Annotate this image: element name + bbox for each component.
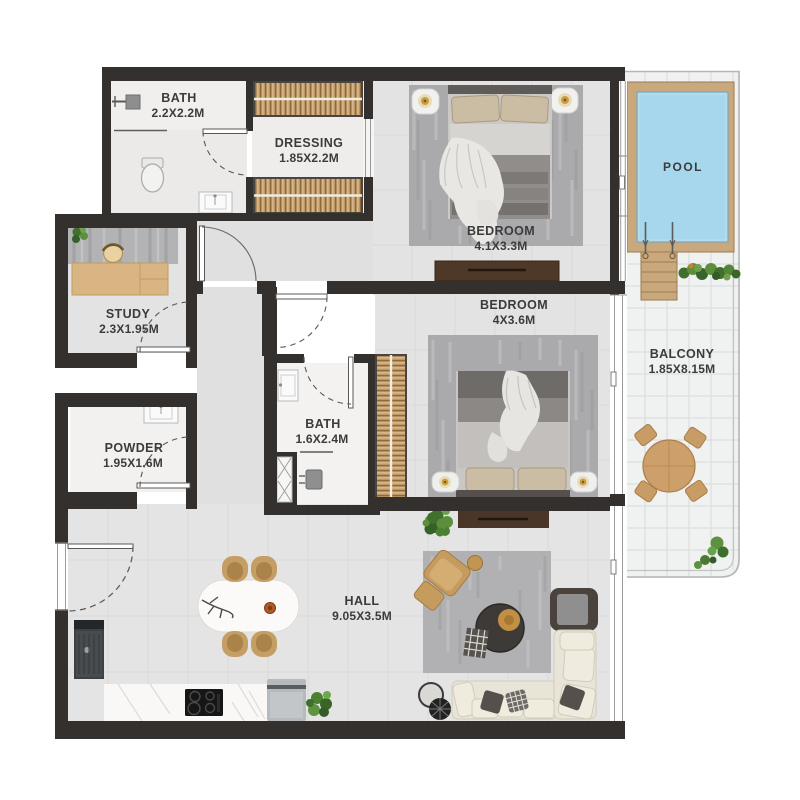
svg-text:2.3X1.95M: 2.3X1.95M xyxy=(99,322,159,336)
svg-text:4.1X3.3M: 4.1X3.3M xyxy=(475,239,528,253)
svg-text:POWDER: POWDER xyxy=(105,441,164,455)
svg-text:BALCONY: BALCONY xyxy=(650,347,715,361)
svg-text:1.85X8.15M: 1.85X8.15M xyxy=(649,362,716,376)
svg-text:STUDY: STUDY xyxy=(106,307,151,321)
svg-text:1.95X1.6M: 1.95X1.6M xyxy=(103,456,163,470)
svg-text:DRESSING: DRESSING xyxy=(275,136,344,150)
svg-text:1.85X2.2M: 1.85X2.2M xyxy=(279,151,339,165)
svg-text:BEDROOM: BEDROOM xyxy=(467,224,535,238)
svg-text:9.05X3.5M: 9.05X3.5M xyxy=(332,609,392,623)
svg-text:4X3.6M: 4X3.6M xyxy=(493,313,536,327)
svg-text:1.6X2.4M: 1.6X2.4M xyxy=(296,432,349,446)
svg-text:BATH: BATH xyxy=(161,91,196,105)
svg-text:2.2X2.2M: 2.2X2.2M xyxy=(152,106,205,120)
svg-text:BEDROOM: BEDROOM xyxy=(480,298,548,312)
svg-text:BATH: BATH xyxy=(305,417,340,431)
svg-text:POOL: POOL xyxy=(663,160,703,174)
svg-text:HALL: HALL xyxy=(345,594,380,608)
